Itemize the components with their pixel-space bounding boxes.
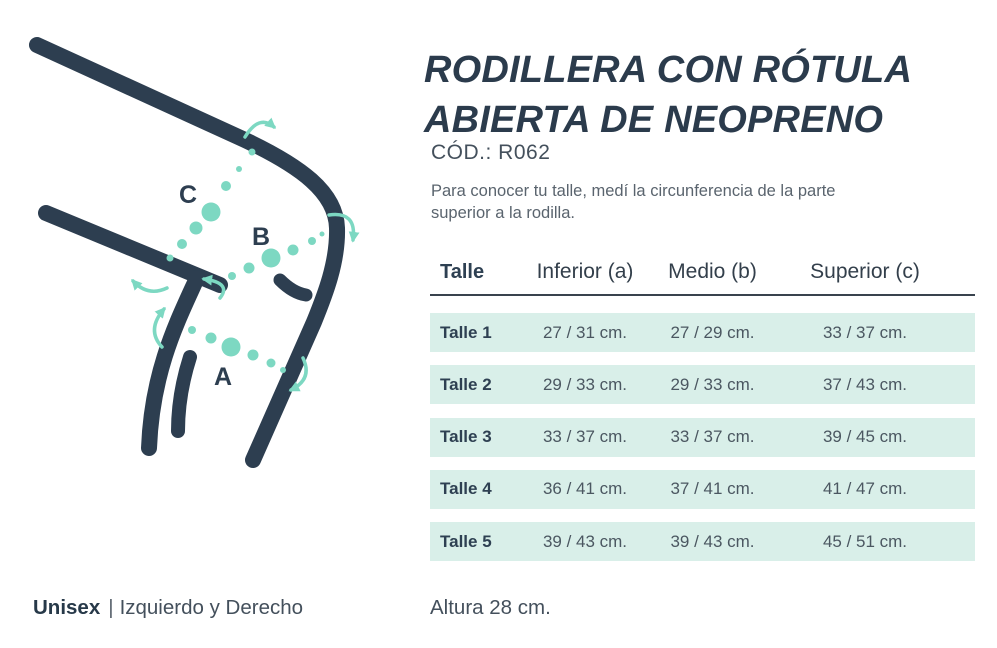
measuring-instructions: Para conocer tu talle, medí la circunfer… xyxy=(431,180,991,224)
measure-dots-a xyxy=(188,326,286,373)
row-label: Talle 2 xyxy=(430,375,525,395)
cell-superior: 39 / 45 cm. xyxy=(780,427,975,447)
row-label: Talle 5 xyxy=(430,532,525,552)
cell-superior: 45 / 51 cm. xyxy=(780,532,975,552)
cell-medio: 33 / 37 cm. xyxy=(645,427,780,447)
table-header-rule xyxy=(430,294,975,296)
page-title-line2: ABIERTA DE NEOPRENO xyxy=(424,95,989,145)
label-b: B xyxy=(252,223,270,251)
label-c: C xyxy=(179,181,197,209)
header-medio: Medio (b) xyxy=(645,260,780,286)
cell-inferior: 27 / 31 cm. xyxy=(525,323,645,343)
gender-label: Unisex xyxy=(33,596,100,619)
separator-bar: | xyxy=(100,596,119,619)
knee-illustration: C B A xyxy=(0,0,420,500)
cell-medio: 37 / 41 cm. xyxy=(645,479,780,499)
instructions-line2: superior a la rodilla. xyxy=(431,202,991,224)
cell-superior: 33 / 37 cm. xyxy=(780,323,975,343)
label-a: A xyxy=(214,363,232,391)
size-table-body: Talle 1 27 / 31 cm. 27 / 29 cm. 33 / 37 … xyxy=(430,313,975,574)
table-row: Talle 2 29 / 33 cm. 29 / 33 cm. 37 / 43 … xyxy=(430,365,975,404)
cell-inferior: 29 / 33 cm. xyxy=(525,375,645,395)
header-talle: Talle xyxy=(430,261,525,286)
page-title: RODILLERA CON RÓTULA ABIERTA DE NEOPRENO xyxy=(424,45,989,145)
gender-side-note: Unisex|Izquierdo y Derecho xyxy=(33,596,303,620)
row-label: Talle 4 xyxy=(430,479,525,499)
cell-medio: 27 / 29 cm. xyxy=(645,323,780,343)
height-note: Altura 28 cm. xyxy=(430,596,551,620)
measure-dots-b xyxy=(228,232,325,281)
table-row: Talle 4 36 / 41 cm. 37 / 41 cm. 41 / 47 … xyxy=(430,470,975,509)
product-code: CÓD.: R062 xyxy=(431,141,550,165)
cell-medio: 29 / 33 cm. xyxy=(645,375,780,395)
cell-superior: 41 / 47 cm. xyxy=(780,479,975,499)
size-guide-page: C B A RODILLERA CON RÓTULA ABIERTA DE NE… xyxy=(0,0,997,648)
table-row: Talle 1 27 / 31 cm. 27 / 29 cm. 33 / 37 … xyxy=(430,313,975,352)
knee-dash xyxy=(280,280,306,295)
cell-inferior: 39 / 43 cm. xyxy=(525,532,645,552)
header-inferior: Inferior (a) xyxy=(525,260,645,286)
size-table-header: Talle Inferior (a) Medio (b) Superior (c… xyxy=(430,252,975,286)
side-label: Izquierdo y Derecho xyxy=(120,596,303,619)
cell-inferior: 33 / 37 cm. xyxy=(525,427,645,447)
header-superior: Superior (c) xyxy=(780,260,975,286)
shin-line xyxy=(178,357,190,431)
cell-medio: 39 / 43 cm. xyxy=(645,532,780,552)
table-row: Talle 3 33 / 37 cm. 33 / 37 cm. 39 / 45 … xyxy=(430,418,975,457)
row-label: Talle 3 xyxy=(430,427,525,447)
table-row: Talle 5 39 / 43 cm. 39 / 43 cm. 45 / 51 … xyxy=(430,522,975,561)
instructions-line1: Para conocer tu talle, medí la circunfer… xyxy=(431,180,991,202)
page-title-line1: RODILLERA CON RÓTULA xyxy=(424,45,989,95)
arrow-left-icon xyxy=(133,281,167,291)
cell-superior: 37 / 43 cm. xyxy=(780,375,975,395)
row-label: Talle 1 xyxy=(430,323,525,343)
cell-inferior: 36 / 41 cm. xyxy=(525,479,645,499)
